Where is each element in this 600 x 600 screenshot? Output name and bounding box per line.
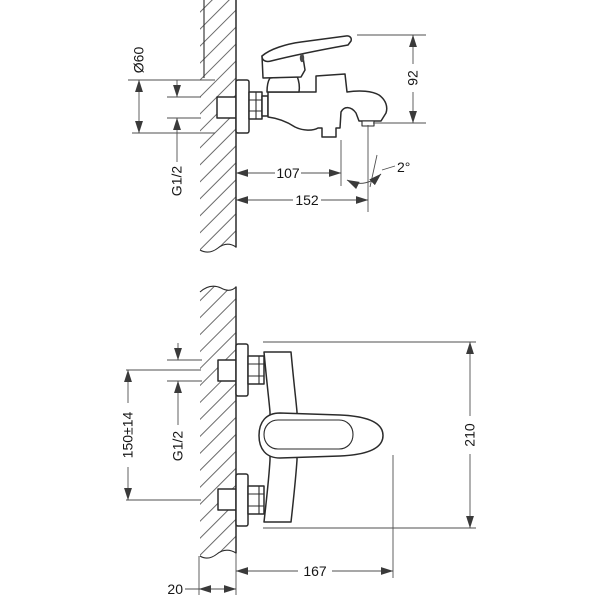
- side-escutcheon: [236, 80, 249, 133]
- side-handle-lever: [262, 36, 351, 62]
- dim-label-wall-thickness: 20: [167, 581, 183, 597]
- top-handle: [259, 413, 383, 458]
- top-inlet-pipe-right: [218, 489, 236, 510]
- dim-top-centers: 150±14: [120, 370, 202, 500]
- side-hex-nut: [249, 92, 268, 119]
- top-hex-nut-left: [248, 356, 264, 384]
- top-handle-lever-face: [264, 420, 353, 449]
- dim-label-length: 167: [303, 563, 327, 579]
- dim-label-thread-side: G1/2: [169, 166, 185, 197]
- side-lever-screw: [300, 54, 304, 62]
- dim-side-total-reach-152: 152: [236, 192, 368, 208]
- dim-top-length-167: 167: [236, 455, 393, 595]
- side-wall: [200, 0, 236, 252]
- top-escutcheon-left: [236, 344, 248, 396]
- dim-side-reach-107: 107: [236, 140, 341, 186]
- side-view: Ø60 G1/2 107 152 2°: [128, 0, 426, 252]
- side-inlet-pipe: [217, 97, 236, 118]
- dim-label-height: 92: [405, 70, 421, 86]
- top-wall-hatch: [200, 286, 236, 558]
- top-escutcheon-right: [236, 474, 248, 526]
- top-wall: [200, 286, 236, 558]
- dim-side-thread: G1/2: [167, 80, 201, 196]
- faucet-technical-drawing: Ø60 G1/2 107 152 2°: [0, 0, 600, 600]
- dim-label-width: 210: [462, 423, 478, 447]
- dim-label-centers: 150±14: [120, 411, 136, 458]
- dim-label-diameter: Ø60: [131, 47, 147, 74]
- dim-label-thread-top: G1/2: [170, 431, 186, 462]
- dim-label-total-reach: 152: [295, 192, 319, 208]
- dim-side-angle: 2°: [347, 125, 410, 212]
- dim-label-reach: 107: [276, 165, 300, 181]
- dim-top-thread: G1/2: [167, 343, 202, 461]
- top-view: 150±14 G1/2 210 167: [120, 286, 478, 597]
- side-wall-hatch: [200, 0, 236, 252]
- top-inlet-pipe-left: [218, 360, 236, 381]
- top-hex-nut-right: [248, 486, 264, 514]
- side-nut-collar: [262, 96, 268, 116]
- dim-top-wall-thickness-20: 20: [167, 556, 236, 597]
- drawing-canvas: Ø60 G1/2 107 152 2°: [0, 0, 600, 600]
- dim-label-angle: 2°: [397, 159, 410, 175]
